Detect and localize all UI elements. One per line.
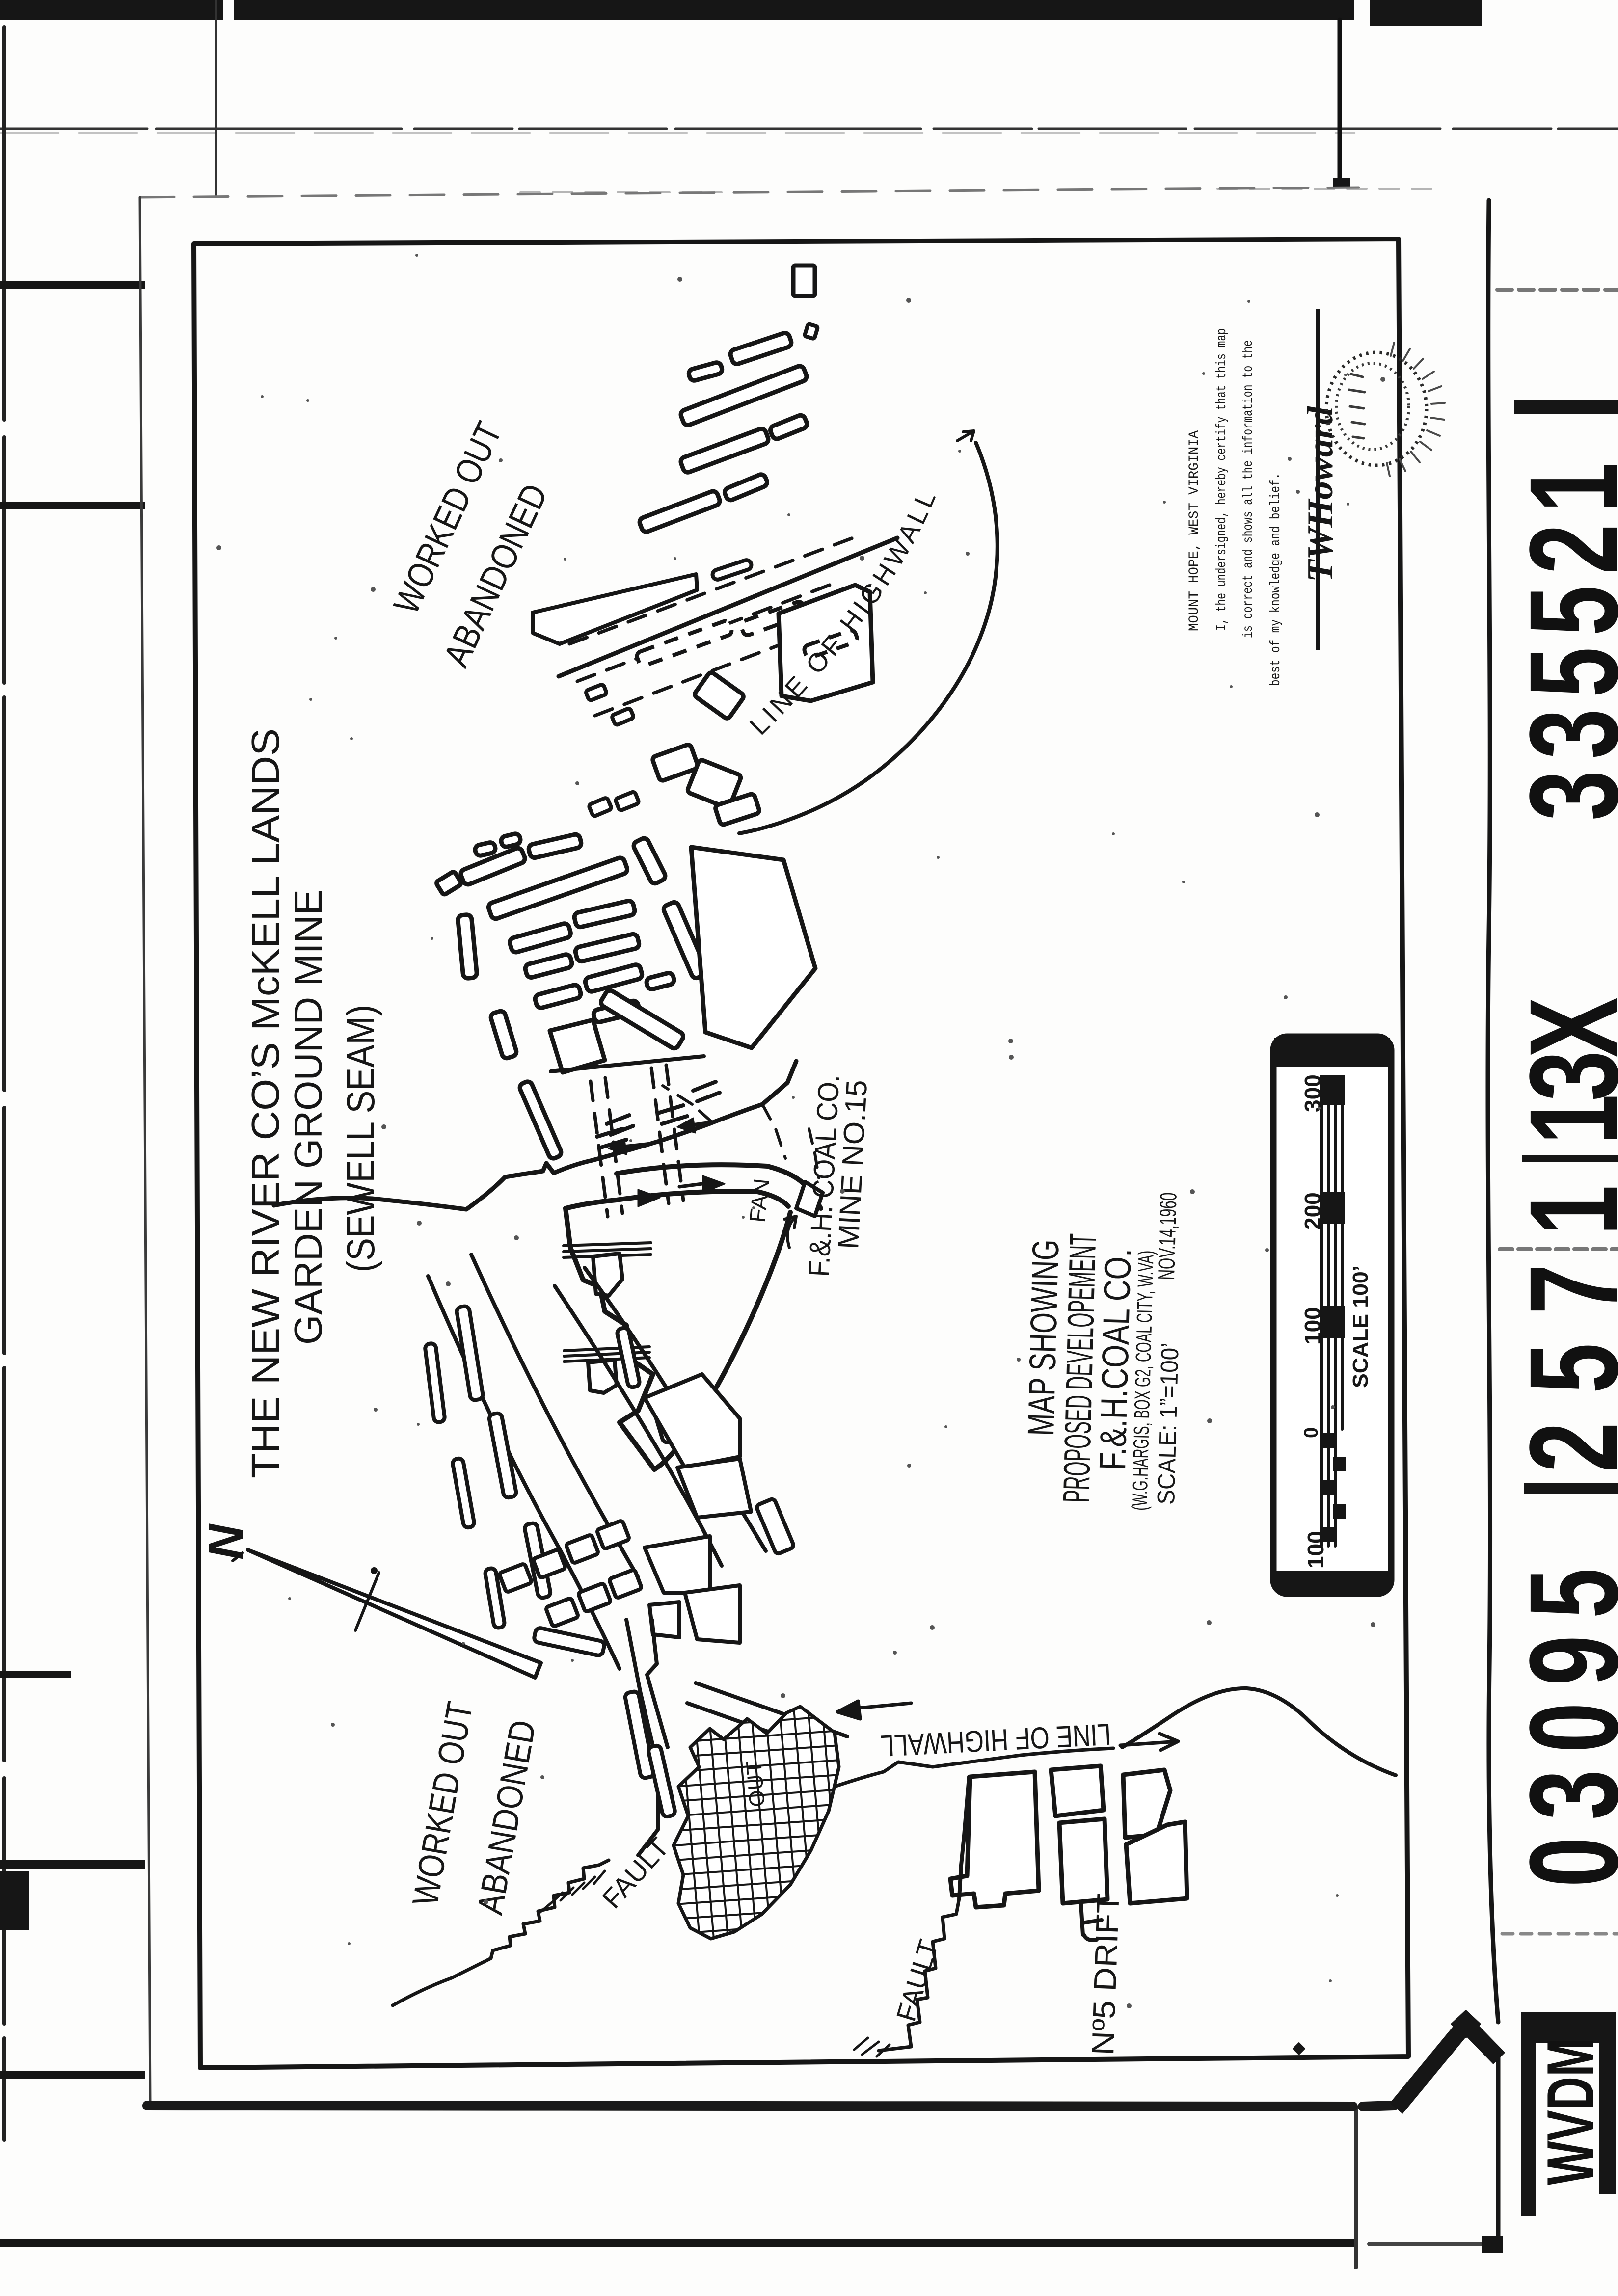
svg-text:0: 0: [1300, 1427, 1322, 1438]
svg-text:best of my knowledge and belie: best of my knowledge and belief.: [1268, 473, 1284, 686]
svg-text:I, the undersigned, hereby cer: I, the undersigned, hereby certify that …: [1214, 328, 1230, 631]
svg-text:Nº5 DRIFT: Nº5 DRIFT: [1085, 1893, 1126, 2056]
svg-text:WVDM: WVDM: [1533, 2038, 1608, 2185]
svg-text:N: N: [198, 1523, 253, 1560]
svg-text:100: 100: [1303, 1531, 1328, 1569]
svg-text:GARDEN GROUND MINE: GARDEN GROUND MINE: [286, 889, 330, 1345]
svg-text:SCALE 100’: SCALE 100’: [1348, 1265, 1373, 1388]
svg-text:MOUNT HOPE, WEST VIRGINIA: MOUNT HOPE, WEST VIRGINIA: [1187, 430, 1202, 631]
svg-text:SCALE: 1”=100’: SCALE: 1”=100’: [1152, 1342, 1184, 1505]
svg-text:200: 200: [1300, 1192, 1325, 1230]
svg-text:OUT: OUT: [742, 1761, 770, 1808]
svg-text:13X: 13X: [1504, 997, 1618, 1145]
svg-text:is correct and shows all the i: is correct and shows all the information…: [1241, 340, 1256, 638]
svg-text:03095: 03095: [1504, 1568, 1618, 1887]
svg-text:THE NEW RIVER CO’S McKELL LAND: THE NEW RIVER CO’S McKELL LANDS: [243, 728, 287, 1478]
svg-text:TWHoward: TWHoward: [1300, 406, 1341, 582]
svg-text:FAN: FAN: [744, 1177, 774, 1224]
svg-text:(SEWELL SEAM): (SEWELL SEAM): [339, 1005, 382, 1272]
svg-text:300: 300: [1300, 1074, 1325, 1112]
svg-text:NOV.14,1960: NOV.14,1960: [1154, 1192, 1182, 1280]
svg-text:100: 100: [1300, 1307, 1325, 1345]
